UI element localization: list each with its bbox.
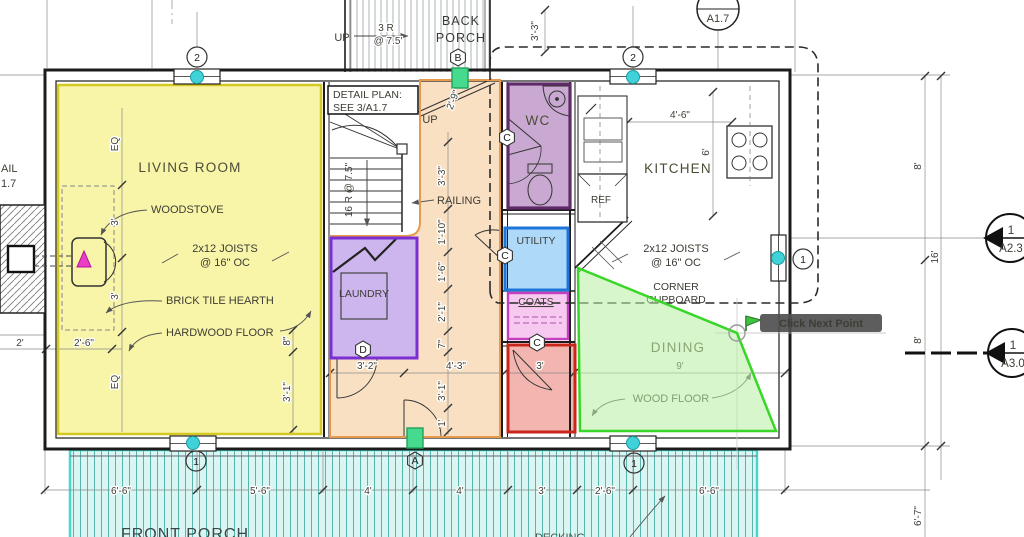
woodstove-note: WOODSTOVE [151, 204, 224, 216]
door-hex: C [500, 129, 515, 146]
porch-riser-note: @ 7.5' [374, 36, 403, 47]
dim-label: 8" [282, 336, 293, 346]
back-porch-label: BACK [442, 14, 480, 28]
dim-label: 2'-6" [74, 338, 94, 349]
floorplan-canvas[interactable]: 6'-6" 5'-6" 4' 4' 3' 2'-6" 6'-6" 8' 16' … [0, 0, 1024, 537]
back-door-marker [452, 68, 468, 88]
dim-label: 3'-3" [530, 21, 541, 41]
dim-label: 3'-1" [437, 381, 448, 401]
dim-label: 2'-6" [595, 486, 615, 497]
dim-label: 4'-3" [446, 361, 466, 372]
svg-text:B: B [454, 52, 461, 64]
detail-note: SEE 3/A1.7 [333, 102, 387, 114]
section-bubble-A2-3: 1 A2.3 [983, 214, 1024, 262]
up-stair-note: UP [422, 114, 437, 126]
svg-text:C: C [533, 337, 541, 349]
decking-label: DECKING [535, 532, 585, 537]
dim-label: EQ [110, 137, 121, 152]
dim-label: 6'-7" [913, 506, 924, 526]
svg-text:D: D [359, 344, 367, 356]
svg-text:1: 1 [1010, 338, 1017, 352]
svg-text:2: 2 [630, 52, 636, 64]
wc-label: WC [526, 113, 551, 128]
joists-note: @ 16" OC [200, 257, 250, 269]
dim-label: 6'-6" [699, 486, 719, 497]
floor-note: HARDWOOD FLOOR [166, 327, 274, 339]
window-bubble: 2 [187, 47, 207, 67]
svg-text:A1.7: A1.7 [707, 13, 730, 25]
dim-label: 3'-3" [437, 166, 448, 186]
dim-label: 3' [536, 361, 544, 372]
svg-text:A3.0: A3.0 [1001, 358, 1024, 370]
svg-text:C: C [501, 250, 509, 262]
svg-text:A: A [411, 455, 418, 467]
dim-label: 3' [538, 486, 546, 497]
dim-label: 1'-6" [437, 262, 448, 282]
dim-label: 3' [110, 292, 121, 300]
dim-label: EQ [110, 375, 121, 390]
joists-note-kitchen: 2x12 JOISTS [643, 243, 708, 255]
svg-text:2: 2 [194, 52, 200, 64]
porch-riser-note: 3 R [378, 23, 394, 34]
door-hex: C [530, 334, 545, 351]
svg-text:A2.3: A2.3 [999, 243, 1023, 255]
svg-text:1: 1 [1008, 223, 1015, 237]
dim-label: 8' [913, 162, 924, 170]
dim-label: 4'-6" [670, 110, 690, 121]
ref-label: REF [591, 195, 611, 206]
dim-label: 3'-1" [282, 382, 293, 402]
takeoff-app-viewport: 6'-6" 5'-6" 4' 4' 3' 2'-6" 6'-6" 8' 16' … [0, 0, 1024, 537]
living-room-label: LIVING ROOM [138, 160, 241, 175]
clipped-left-text: 1.7 [1, 178, 16, 190]
cursor-flag-icon [746, 316, 761, 331]
dim-label: 6'-6" [111, 486, 131, 497]
front-porch-label: FRONT PORCH [121, 526, 249, 537]
wc-takeoff[interactable] [508, 84, 570, 208]
svg-text:1: 1 [193, 456, 199, 468]
up-porch-note: UP [334, 32, 349, 44]
dim-label: 2' [16, 338, 24, 349]
door-hex: B [451, 49, 466, 66]
dim-label: 3' [110, 218, 121, 226]
dim-label: 7" [437, 339, 448, 349]
railing-note: RAILING [437, 195, 481, 207]
detail-bubble: A1.7 [697, 0, 739, 30]
dim-label: 6' [701, 148, 712, 156]
kitchen-label: KITCHEN [644, 161, 712, 176]
riser-note: 16 R @ 7.5" [344, 162, 355, 217]
dim-label: 2'-1" [437, 302, 448, 322]
section-bubble-A3-0: 1 A3.0 [905, 329, 1024, 377]
dim-label: 16' [930, 250, 941, 263]
tooltip: Click Next Point [760, 314, 882, 332]
dim-label: 4' [364, 486, 372, 497]
front-door-marker [407, 428, 423, 448]
joists-note-kitchen: @ 16" OC [651, 257, 701, 269]
dim-label: 8' [913, 336, 924, 344]
svg-text:C: C [503, 132, 511, 144]
joists-note: 2x12 JOISTS [192, 243, 257, 255]
window-bubble: 1 [793, 249, 813, 269]
laundry-label: LAUNDRY [339, 288, 389, 300]
dim-label: 4' [456, 486, 464, 497]
svg-text:1: 1 [800, 254, 806, 266]
tooltip-label: Click Next Point [779, 318, 863, 330]
hearth-note: BRICK TILE HEARTH [166, 295, 274, 307]
window-bubble: 2 [623, 47, 643, 67]
dim-label: 1' [437, 419, 448, 427]
entry-takeoff[interactable] [508, 345, 575, 432]
back-porch-label: PORCH [436, 31, 486, 45]
door-hex: D [356, 341, 371, 358]
dim-label: 1'-10" [437, 219, 448, 245]
svg-text:1: 1 [631, 458, 637, 470]
door-hex: C [498, 247, 513, 264]
clipped-left-text: AIL [1, 163, 18, 175]
dim-label: 3'-2" [357, 361, 377, 372]
dim-label: 5'-6" [250, 486, 270, 497]
cupboard-note: CORNER [653, 281, 699, 293]
coats-label: COATS [518, 296, 553, 308]
detail-note: DETAIL PLAN: [333, 89, 402, 101]
utility-label: UTILITY [516, 235, 555, 247]
